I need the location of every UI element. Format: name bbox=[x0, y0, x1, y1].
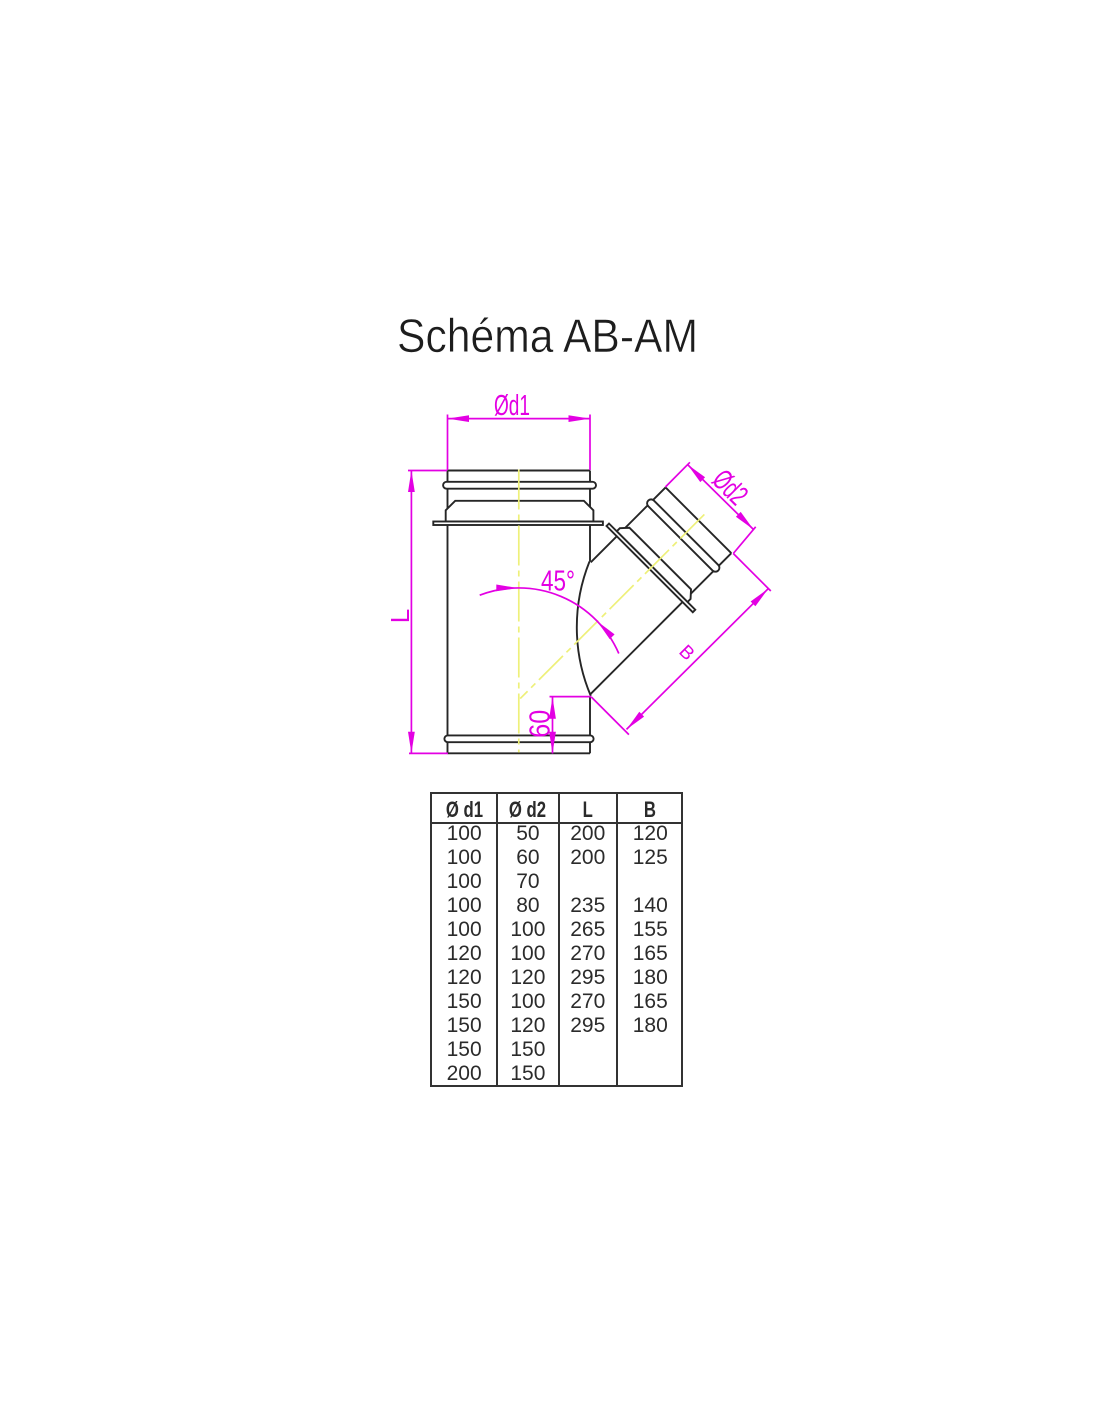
svg-text:L: L bbox=[385, 609, 415, 623]
svg-text:60: 60 bbox=[525, 710, 557, 738]
svg-text:45°: 45° bbox=[541, 566, 575, 598]
svg-text:Ød1: Ød1 bbox=[494, 390, 530, 422]
svg-text:Ød2: Ød2 bbox=[706, 464, 754, 512]
